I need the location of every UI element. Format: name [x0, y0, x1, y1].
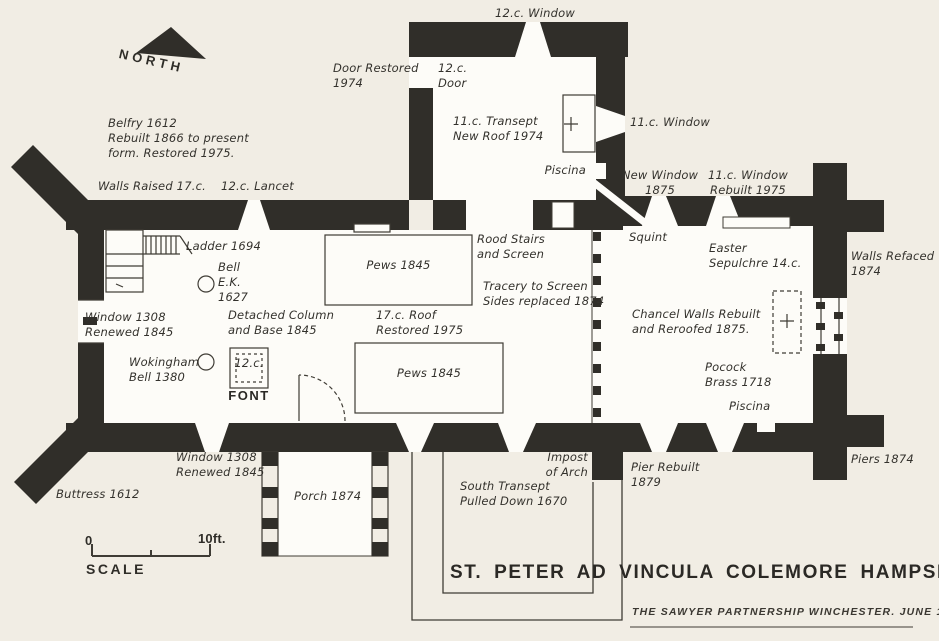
scale-label: SCALE — [86, 561, 146, 577]
label-piscina-south: Piscina — [729, 399, 770, 414]
label-walls-refaced: Walls Refaced 1874 — [851, 249, 934, 279]
label-ladder: Ladder 1694 — [186, 239, 261, 254]
label-font: FONT — [224, 388, 274, 403]
label-wokingham: Wokingham Bell 1380 — [129, 355, 199, 385]
scale-bar — [92, 544, 210, 556]
label-walls-raised: Walls Raised 17.c. — [98, 179, 206, 194]
church-floor-plan: NORTH 12.c. Window Door Restored 1974 12… — [0, 0, 939, 641]
label-roof-17c: 17.c. Roof Restored 1975 — [376, 308, 463, 338]
label-pier-rebuilt: Pier Rebuilt 1879 — [631, 460, 700, 490]
label-tracery: Tracery to Screen Sides replaced 1874 — [483, 279, 604, 309]
label-pocock: Pocock Brass 1718 — [705, 360, 772, 390]
label-bell-ek: Bell E.K. 1627 — [218, 260, 248, 305]
credit-line: THE SAWYER PARTNERSHIP WINCHESTER. JUNE … — [632, 606, 939, 618]
label-piscina-north: Piscina — [528, 163, 586, 178]
transept-west-wall — [409, 88, 433, 200]
west-wall-lower — [78, 343, 104, 430]
label-font-date: 12.c. — [230, 356, 268, 371]
piscina-south-recess — [757, 423, 775, 432]
east-buttress-north — [847, 200, 884, 232]
label-squint: Squint — [629, 230, 667, 245]
label-easter-sepulchre: Easter Sepulchre 14.c. — [709, 241, 802, 271]
label-south-transept: South Transept Pulled Down 1670 — [460, 479, 567, 509]
east-buttress-south — [847, 415, 884, 447]
label-rood-stairs: Rood Stairs and Screen — [477, 232, 545, 262]
pier — [592, 423, 623, 480]
label-belfry: Belfry 1612 Rebuilt 1866 to present form… — [108, 116, 249, 161]
easter-sepulchre-recess — [723, 217, 790, 228]
label-new-window: New Window 1875 — [620, 168, 700, 198]
label-pews-south: Pews 1845 — [355, 366, 503, 381]
scale-zero: 0 — [85, 533, 92, 548]
west-wall-upper — [78, 226, 104, 300]
label-detached-column: Detached Column and Base 1845 — [228, 308, 334, 338]
label-12c-lancet: 12.c. Lancet — [221, 179, 294, 194]
label-11c-window: 11.c. Window — [630, 115, 710, 130]
label-porch: Porch 1874 — [294, 489, 361, 504]
label-window-1308-south: Window 1308 Renewed 1845 — [176, 450, 265, 480]
label-window-rebuilt: 11.c. Window Rebuilt 1975 — [704, 168, 792, 198]
label-12c-window-top: 12.c. Window — [470, 6, 600, 21]
piscina-north-recess — [596, 163, 606, 179]
label-buttress: Buttress 1612 — [56, 487, 140, 502]
label-door-restored: Door Restored 1974 — [333, 61, 419, 91]
label-12c-door: 12.c. Door — [438, 61, 467, 91]
label-transept-11c: 11.c. Transept New Roof 1974 — [453, 114, 543, 144]
label-impost: Impost of Arch — [516, 450, 588, 480]
page-title: ST. PETER AD VINCULA COLEMORE HAMPSHIRE — [450, 562, 939, 584]
label-window-1308-west: Window 1308 Renewed 1845 — [85, 310, 174, 340]
scale-ten-ft: 10ft. — [198, 531, 226, 546]
label-chancel-walls: Chancel Walls Rebuilt and Reroofed 1875. — [632, 307, 760, 337]
label-pews-north: Pews 1845 — [325, 258, 472, 273]
rood-stairs-opening — [552, 202, 574, 228]
label-piers-1874: Piers 1874 — [851, 452, 914, 467]
